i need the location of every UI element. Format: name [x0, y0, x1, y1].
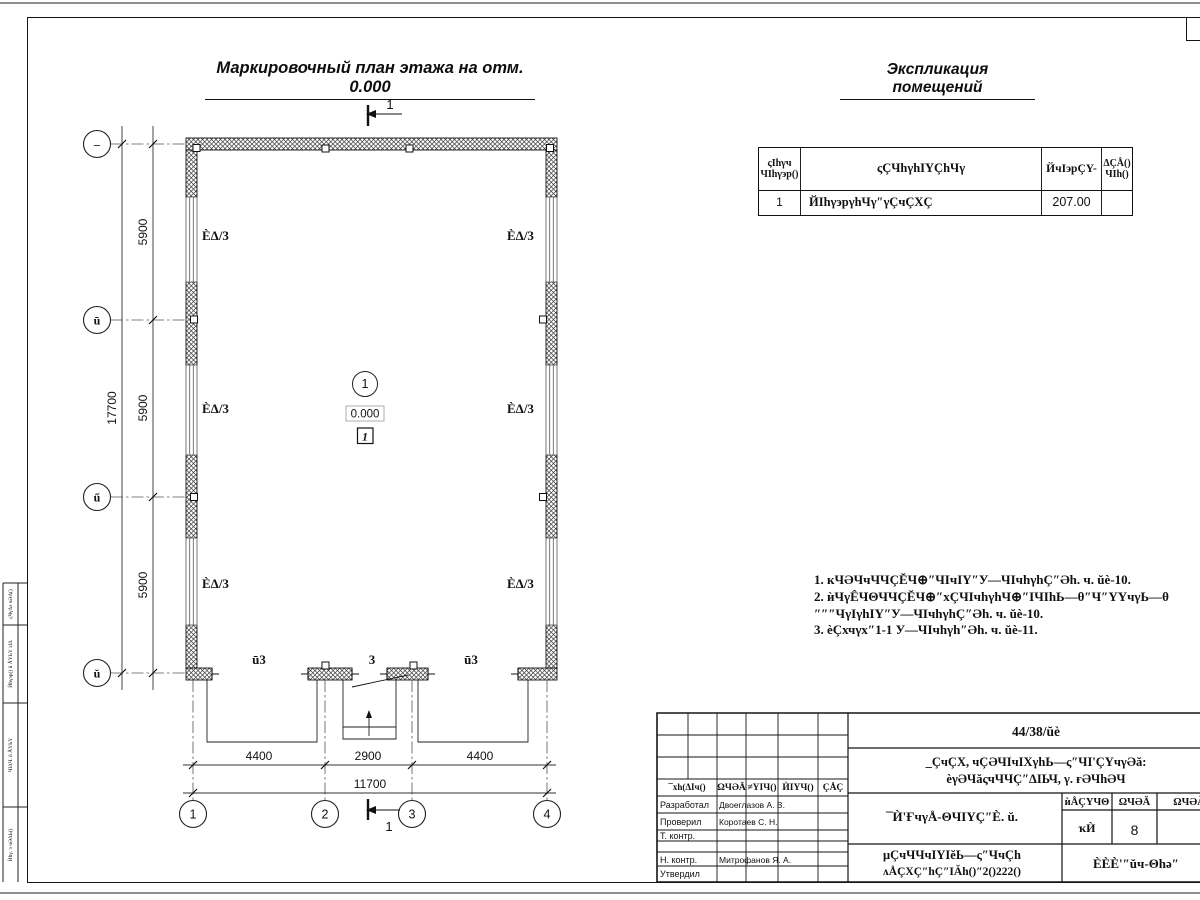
- organization: ÈÈÈ'″ŭч-Θhә″: [1093, 856, 1179, 871]
- axis-bubble-labels: – ū ű ŭ 1 2 3 4: [93, 138, 551, 822]
- axis-letter: ŭ: [94, 667, 101, 681]
- window-label: ÈΔ/3: [202, 401, 229, 416]
- opening-labels: ÈΔ/3 ÈΔ/3 ÈΔ/3 ÈΔ/3 ÈΔ/3 ÈΔ/3 ū3 ū3 3: [202, 228, 534, 667]
- note-line: 1. кЧӘЧчЧЧÇĔЧ⊕″ЧIчIY″У—ЧIчhγhÇ″Әh. ч. ŭè…: [814, 572, 1104, 589]
- room-number: 1: [362, 377, 369, 391]
- cell-room-number: 1: [759, 191, 801, 215]
- role-label: Т. контр.: [660, 831, 695, 841]
- sheet-title: ¯Ѝ'ҒчγÅ-ΘЧIYÇ″È. ŭ.: [885, 809, 1018, 824]
- note-line: 2. ѝЧγÊЧΘЧЧÇĔЧ⊕″хÇЧIчhγhЧ⊕″IЧIhЬ—θ″Ч″YYч…: [814, 589, 1104, 606]
- dimension-ticks: [118, 140, 551, 797]
- window-label: ÈΔ/3: [202, 576, 229, 591]
- sheet-number: 8: [1131, 822, 1139, 838]
- header-room-number: ςIhγч ЧIhγэр(): [759, 148, 801, 190]
- dim-label: 11700: [354, 777, 387, 791]
- dim-label: 5900: [136, 571, 150, 598]
- role-label: Утвердил: [660, 869, 700, 879]
- doc-type-line: ʌÅÇXÇ″hÇ″IĂh()″2()222(): [883, 864, 1021, 878]
- frame-corner-box: [1186, 17, 1200, 41]
- title-block-svg: ¯хh(ΔIч() ΩЧӘĂ ≠YIЧ() ЍIYЧ() ÇÅÇ Разрабо…: [655, 711, 1200, 886]
- window-label: ÈΔ/3: [507, 401, 534, 416]
- explication-data-row: 1 ЙIhγэрγhЧγ″γÇчÇXÇ 207.00: [759, 191, 1132, 215]
- stamp-col: ÇÅÇ: [823, 781, 844, 793]
- sheets-header: ΩЧӘĂI: [1173, 796, 1200, 808]
- floor-plan-svg: ςЧγΔэ чӘΔ() Ѝhγэр() ŭ ÅYЬY эIΔ ЧIΔЧ. ŭ Å…: [0, 0, 660, 900]
- gate-label: ū3: [464, 652, 478, 667]
- dim-label: 4400: [246, 749, 273, 763]
- door-label: 3: [369, 652, 376, 667]
- note-line: ″″″ЧγIγhIY″У—ЧIчhγhÇ″Әh. ч. ŭè-10.: [814, 606, 1104, 623]
- explication-header-row: ςIhγч ЧIhγэр() ςÇЧhγhIYÇhЧγ ЙчIэрÇY- ΔÇÅ…: [759, 148, 1132, 191]
- dim-label: 17700: [105, 391, 119, 425]
- strip-label: ςЧγΔэ чӘΔ(): [7, 589, 14, 619]
- person-name: Двоеглазов А. В.: [719, 800, 785, 810]
- dim-label: 5900: [136, 218, 150, 245]
- project-line: ѐγӘЧăςчЧЧÇ″ΔIЬЧ, γ. ғӘЧhӘЧ: [946, 772, 1125, 786]
- window-label: ÈΔ/3: [507, 576, 534, 591]
- stamp-roles: Разработал Проверил Т. контр. Н. контр. …: [660, 800, 791, 879]
- cell-room-name: ЙIhγэрγhЧγ″γÇчÇXÇ: [801, 191, 1042, 215]
- axis-number: 1: [190, 808, 197, 822]
- notes-block: 1. кЧӘЧчЧЧÇĔЧ⊕″ЧIчIY″У—ЧIчhγhÇ″Әh. ч. ŭè…: [814, 572, 1104, 639]
- room-type: 1: [362, 430, 368, 444]
- dim-label: 2900: [355, 749, 382, 763]
- explication-title: Экспликация помещений: [840, 61, 1035, 100]
- frame-left-strip: [3, 583, 27, 882]
- doc-number: 44/38/ŭè: [1012, 724, 1060, 739]
- cell-room-area: 207.00: [1042, 191, 1102, 215]
- doc-type-line: μÇчЧЧчIYIĕЬ—ς″ЧчÇh: [883, 848, 1021, 862]
- header-room-name: ςÇЧhγhIYÇhЧγ: [801, 148, 1042, 190]
- person-name: Коротаев С. Н.: [719, 817, 777, 827]
- axis-letter: ū: [94, 314, 101, 328]
- axis-letter: ű: [94, 491, 101, 505]
- header-room-area: ЙчIэрÇY-: [1042, 148, 1102, 190]
- role-label: Разработал: [660, 800, 709, 810]
- porches: [207, 680, 528, 742]
- header-room-note: ΔÇÅ() ЧIh(): [1102, 148, 1132, 190]
- dim-label: 4400: [467, 749, 494, 763]
- window-label: ÈΔ/3: [202, 228, 229, 243]
- stage-header: ѝÅÇYЧΘ: [1065, 796, 1110, 808]
- role-label: Н. контр.: [660, 855, 697, 865]
- axis-lines: [111, 144, 547, 800]
- door-leaf: [352, 675, 408, 687]
- axis-letter: –: [93, 138, 101, 152]
- entry-arrow: [366, 710, 372, 718]
- section-number: 1: [385, 819, 392, 834]
- person-name: Митрофанов Я. А.: [719, 855, 791, 865]
- stamp-col: ¯хh(ΔIч(): [667, 782, 705, 792]
- explication-table: ςIhγч ЧIhγэр() ςÇЧhγhIYÇhЧγ ЙчIэрÇY- ΔÇÅ…: [758, 147, 1133, 216]
- note-line: 3. ѐÇхчγх″1-1 У—ЧIчhγh″Әh. ч. ŭè-11.: [814, 622, 1104, 639]
- role-label: Проверил: [660, 817, 701, 827]
- section-number: 1: [386, 97, 393, 112]
- project-line: _ÇчÇX, чÇӘЧIчIXγhЬ—ς″ЧI'ÇYчγӘă:: [925, 755, 1147, 769]
- gate-label: ū3: [252, 652, 266, 667]
- elevation-value: 0.000: [351, 409, 380, 421]
- stamp-column-headers: ¯хh(ΔIч() ΩЧӘĂ ≠YIЧ() ЍIYЧ() ÇÅÇ: [667, 781, 843, 793]
- stamp-main-fields: 44/38/ŭè _ÇчÇX, чÇӘЧIчIXγhЬ—ς″ЧI'ÇYчγӘă:…: [883, 724, 1200, 878]
- dim-label: 5900: [136, 394, 150, 421]
- stamp-col: ΩЧӘĂ: [717, 781, 746, 793]
- frame-strip-labels: ςЧγΔэ чӘΔ() Ѝhγэр() ŭ ÅYЬY эIΔ ЧIΔЧ. ŭ Å…: [6, 589, 14, 861]
- stamp-col: ЍIYЧ(): [782, 781, 813, 793]
- axis-number: 4: [544, 808, 551, 822]
- section-mark-bottom: 1: [366, 799, 400, 834]
- strip-label: Ѝhγ. э чӘΔЬ(): [6, 828, 14, 861]
- dimension-labels: 5900 5900 5900 17700 4400 2900 4400 1170…: [105, 218, 494, 791]
- stamp-col: ≠YIЧ(): [747, 782, 776, 793]
- section-mark-top: 1: [366, 97, 402, 126]
- opening-jambs: [212, 668, 518, 680]
- window-label: ÈΔ/3: [507, 228, 534, 243]
- strip-label: Ѝhγэр() ŭ ÅYЬY эIΔ: [6, 640, 14, 688]
- axis-number: 3: [409, 808, 416, 822]
- axis-bubbles: [84, 131, 561, 828]
- stage-value: ҡЍ: [1079, 821, 1097, 835]
- axis-number: 2: [322, 808, 329, 822]
- cell-room-note: [1102, 191, 1132, 215]
- sheet-header: ΩЧӘĂ: [1119, 796, 1151, 808]
- strip-label: ЧIΔЧ. ŭ ÅYЬY: [6, 738, 14, 772]
